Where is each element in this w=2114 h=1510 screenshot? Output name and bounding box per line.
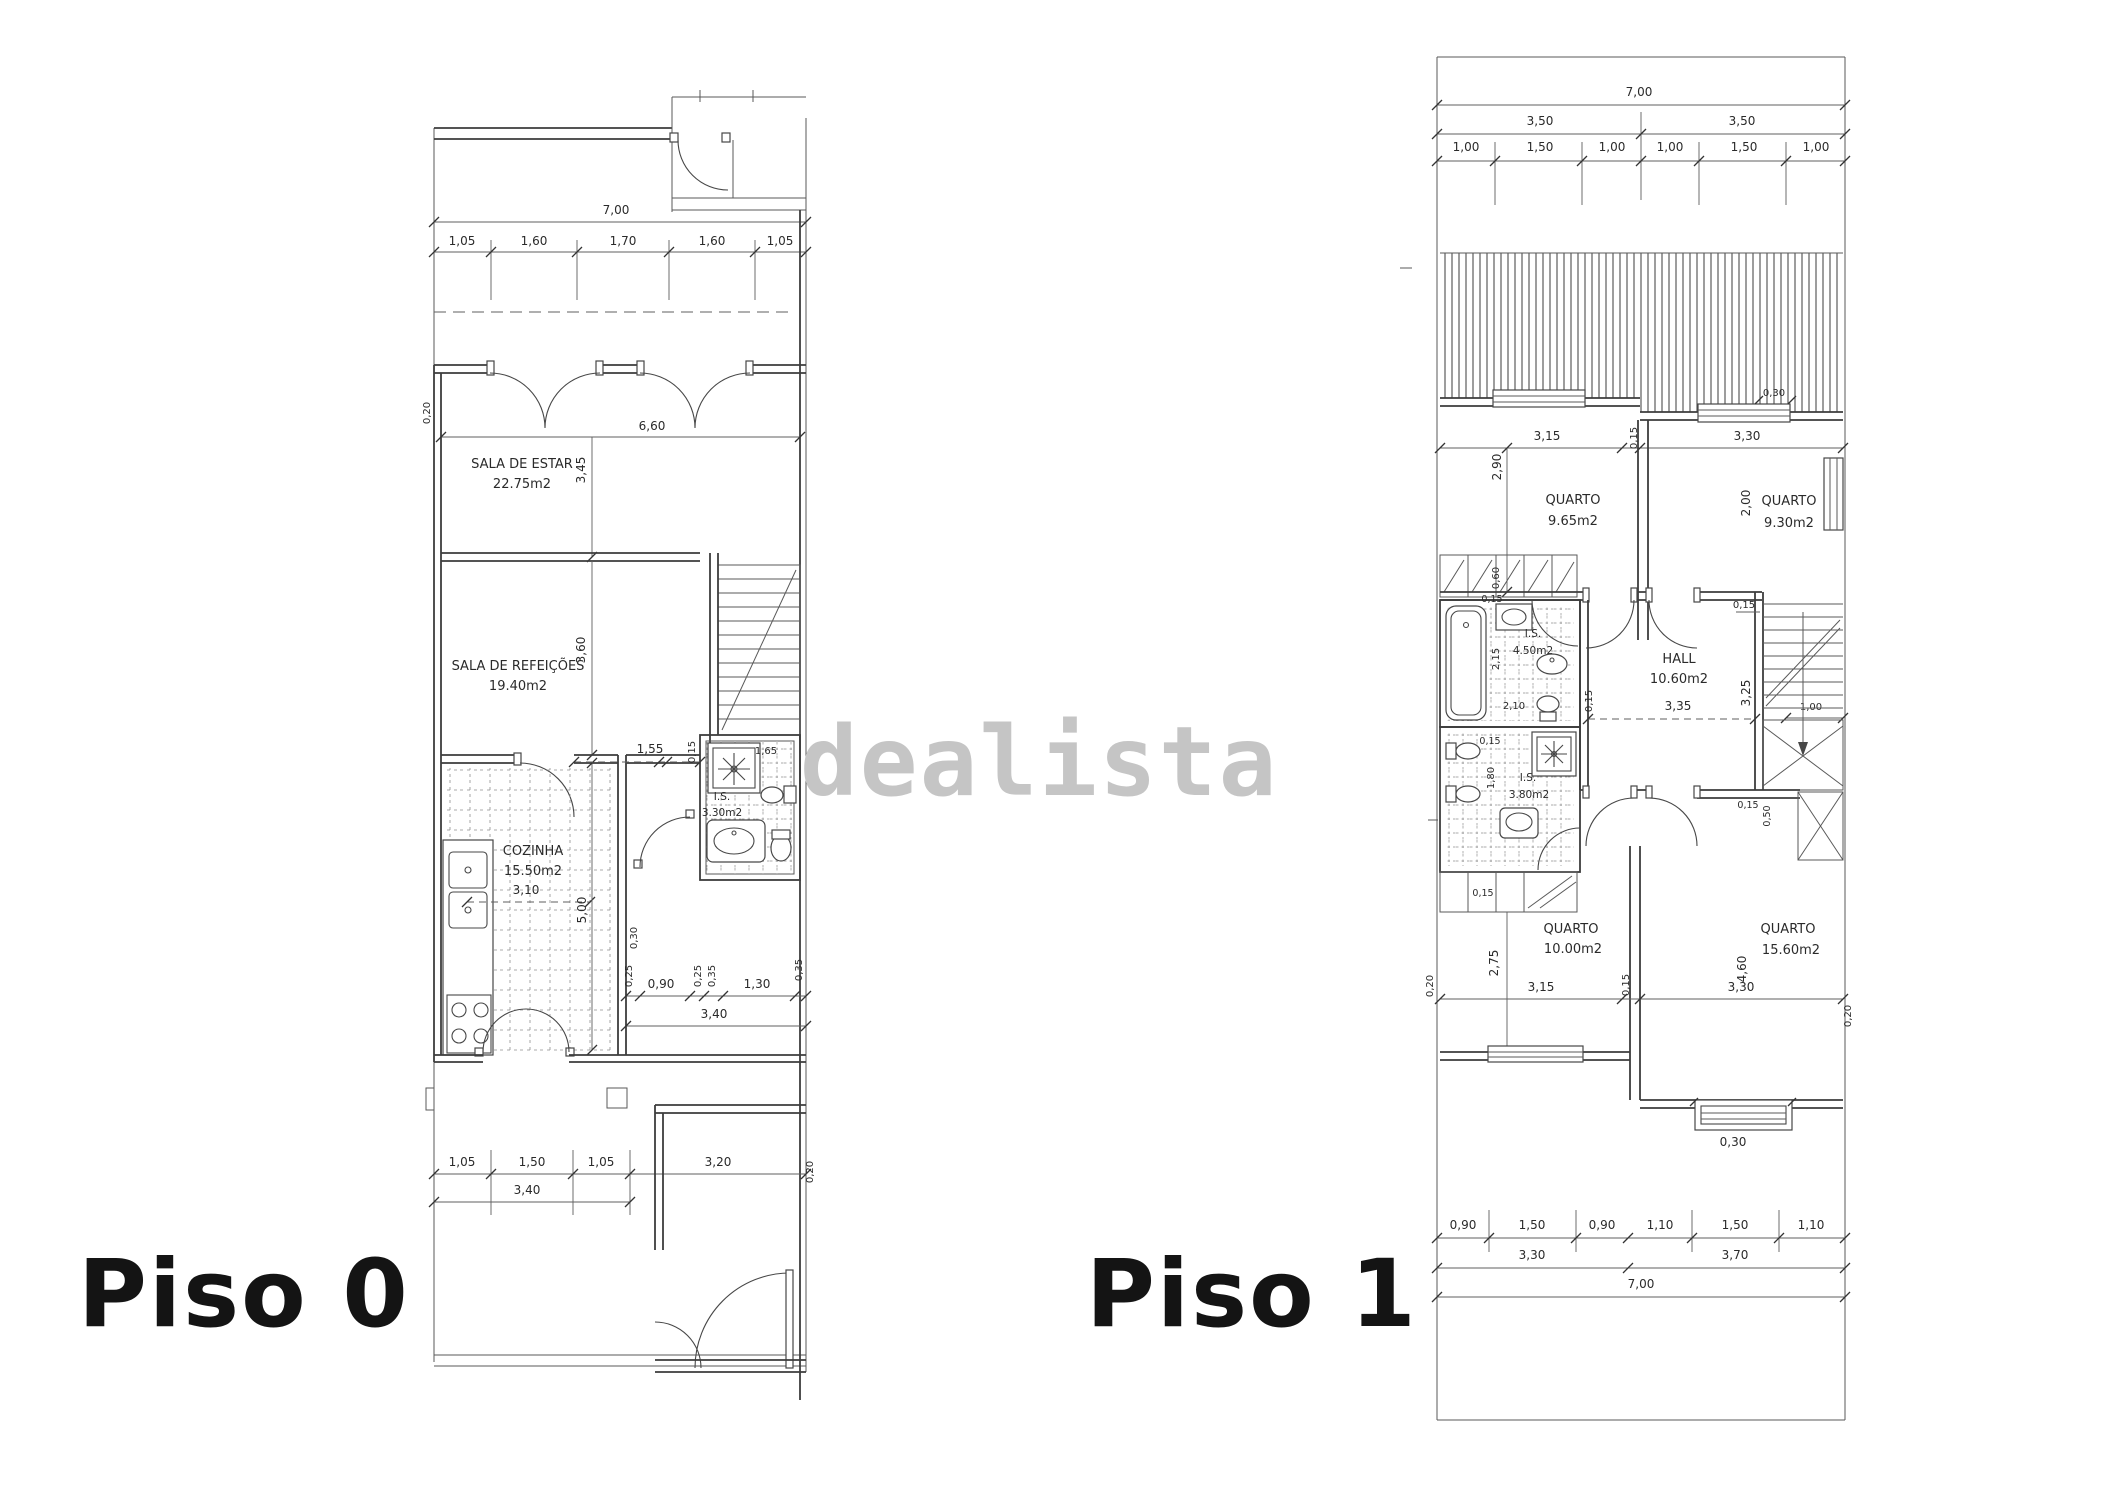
dim-label: 1,05 (449, 1155, 476, 1169)
dim-label: 2,10 (1503, 701, 1525, 712)
dim-label: 3,10 (513, 883, 540, 897)
room-label-sala-refeicoes: SALA DE REFEIÇÕES (452, 658, 585, 674)
dim-label: 1,70 (610, 234, 637, 248)
dim-label: 0,35 (707, 965, 718, 987)
room-area-is1: 4.50m2 (1513, 645, 1553, 657)
dim-label: 1,00 (1453, 140, 1480, 154)
dim-label: 3,30 (1734, 429, 1761, 443)
dim-label: 0,25 (624, 965, 635, 987)
wardrobe-piso1: 0,15 0,50 (1737, 792, 1843, 860)
watermark-idealista: dealista (800, 706, 1278, 818)
dim-label: 6,60 (639, 419, 666, 433)
dim-label: 1,00 (1803, 140, 1830, 154)
room-area-quarto2: 9.30m2 (1764, 516, 1814, 531)
garage-piso0 (655, 1105, 806, 1372)
room-label-quarto2: QUARTO (1762, 494, 1817, 509)
dim-label: 0,15 (1472, 888, 1493, 899)
dim-label: 7,00 (1628, 1277, 1655, 1291)
dim-label: 3,30 (1519, 1248, 1546, 1262)
dim-label: 0,25 (693, 965, 704, 987)
dim-label: 3,70 (1722, 1248, 1749, 1262)
dim-label: 3,15 (1528, 980, 1555, 994)
dim-label: 2,90 (1490, 454, 1504, 481)
dim-label: 0,60 (1491, 567, 1502, 589)
dim-label: 1,10 (1647, 1218, 1674, 1232)
dim-label: 4,60 (1735, 956, 1749, 983)
dim-label: 1,10 (1798, 1218, 1825, 1232)
room-label-is2: I.S. (1520, 772, 1536, 784)
dim-label: 0,15 (1621, 974, 1632, 996)
dim-label: 1,60 (521, 234, 548, 248)
piso0-label: Piso 0 (78, 1240, 410, 1349)
dim-label: 0,20 (1425, 975, 1436, 997)
window-icon (1824, 458, 1843, 530)
dim-label: 0,15 (1479, 736, 1500, 747)
room-area-is2: 3.80m2 (1509, 789, 1549, 801)
stairs-piso1 (1763, 604, 1843, 790)
bidet-icon (1456, 786, 1480, 802)
dim-label: 1,00 (1599, 140, 1626, 154)
dim-label: 0,90 (1589, 1218, 1616, 1232)
dim-label: 3,20 (705, 1155, 732, 1169)
room-label-is: I.S. (714, 791, 730, 803)
toilet-icon (1456, 743, 1480, 759)
roof-hatch (1440, 253, 1843, 398)
dim-label: 2,15 (1491, 648, 1502, 670)
dim-label: 0,30 (1763, 388, 1785, 399)
stairs-piso0 (710, 553, 800, 755)
dim-label: 0,20 (422, 402, 433, 424)
dim-label: 1,50 (1722, 1218, 1749, 1232)
bathroom-piso0: I.S. 3.30m2 (700, 735, 800, 880)
dim-label: 7,00 (603, 203, 630, 217)
room-label-cozinha: COZINHA (503, 844, 564, 859)
dim-label: 2,75 (1487, 950, 1501, 977)
dim-label: 0,15 (687, 741, 698, 763)
room-area-hall: 10.60m2 (1650, 672, 1708, 687)
dim-label: 1,50 (1519, 1218, 1546, 1232)
dim-label: 0,35 (794, 959, 805, 981)
dim-label: 0,50 (1762, 805, 1773, 826)
dim-label: 0,90 (1450, 1218, 1477, 1232)
dim-label: 5,00 (575, 897, 589, 924)
dim-label: 0,15 (1584, 690, 1595, 712)
dim-label: 1,60 (699, 234, 726, 248)
dim-label: 1,80 (1486, 767, 1497, 789)
kitchen-fixtures (443, 840, 493, 1055)
dim-label: 1,50 (1731, 140, 1758, 154)
toilet-icon (761, 787, 783, 803)
piso0-plan: 7,00 1,05 1,60 1,70 1,60 1,05 0,20 6,60 … (422, 90, 816, 1400)
room-area-quarto1: 9.65m2 (1548, 514, 1598, 529)
bathroom2-piso1: 0,15 1,80 I.S. 3.80m2 (1440, 727, 1580, 872)
dim-label: 3,50 (1527, 114, 1554, 128)
piso1-label: Piso 1 (1086, 1240, 1418, 1349)
toilet-icon (1537, 696, 1559, 712)
dim-label: 3,50 (1729, 114, 1756, 128)
room-label-hall: HALL (1662, 652, 1696, 667)
room-area-quarto3: 10.00m2 (1544, 942, 1602, 957)
sink-icon (1496, 604, 1532, 630)
dim-label: 3,45 (574, 457, 588, 484)
floorplan-canvas: 7,00 1,05 1,60 1,70 1,60 1,05 0,20 6,60 … (0, 0, 2114, 1510)
room-area-is: 3.30m2 (702, 807, 742, 819)
dim-label: 7,00 (1626, 85, 1653, 99)
dim-label: 0,20 (805, 1161, 816, 1183)
dim-label: 0,30 (629, 927, 640, 949)
dim-label: 2,00 (1739, 490, 1753, 517)
room-area-sala-refeicoes: 19.40m2 (489, 679, 547, 694)
dim-label: 1,50 (1527, 140, 1554, 154)
dim-label: 0,15 (1733, 600, 1755, 611)
dim-label: 3,40 (514, 1183, 541, 1197)
dim-label: 3,60 (574, 637, 588, 664)
dim-label: 0,15 (1481, 594, 1502, 605)
dim-label: 1,00 (1657, 140, 1684, 154)
dim-label: 1,50 (519, 1155, 546, 1169)
room-label-is1: I.S. (1525, 628, 1541, 640)
piso1-plan: 7,00 3,50 3,50 1,00 1,50 1,00 1,00 1,50 … (1400, 57, 1854, 1420)
dim-label: 1,55 (637, 742, 664, 756)
dim-label: 3,40 (701, 1007, 728, 1021)
sink-icon (707, 820, 765, 862)
room-area-quarto4: 15.60m2 (1762, 943, 1820, 958)
room-label-sala-estar: SALA DE ESTAR (471, 457, 573, 472)
room-label-quarto3: QUARTO (1544, 922, 1599, 937)
dim-label: 1,05 (588, 1155, 615, 1169)
dim-label: 0,90 (648, 977, 675, 991)
room-label-quarto4: QUARTO (1761, 922, 1816, 937)
dim-label: 3,25 (1739, 680, 1753, 707)
dim-label: 3,15 (1534, 429, 1561, 443)
sink-icon (1537, 654, 1567, 674)
dim-label: 1,65 (755, 746, 777, 757)
dim-label: 1,30 (744, 977, 771, 991)
dim-label: 0,30 (1720, 1135, 1747, 1149)
dim-label: 0,20 (1843, 1005, 1854, 1027)
dim-label: 0,15 (1737, 800, 1758, 811)
room-label-quarto1: QUARTO (1546, 493, 1601, 508)
room-area-cozinha: 15.50m2 (504, 864, 562, 879)
dim-label: 3,35 (1665, 699, 1692, 713)
bathtub-icon (1446, 606, 1486, 720)
dim-label: 1,05 (449, 234, 476, 248)
dim-label: 1,05 (767, 234, 794, 248)
toilet-tank (784, 786, 796, 803)
room-area-sala-estar: 22.75m2 (493, 477, 551, 492)
bathroom1-piso1: 0,15 I.S. 4.50m2 2,15 2,10 (1440, 594, 1580, 727)
